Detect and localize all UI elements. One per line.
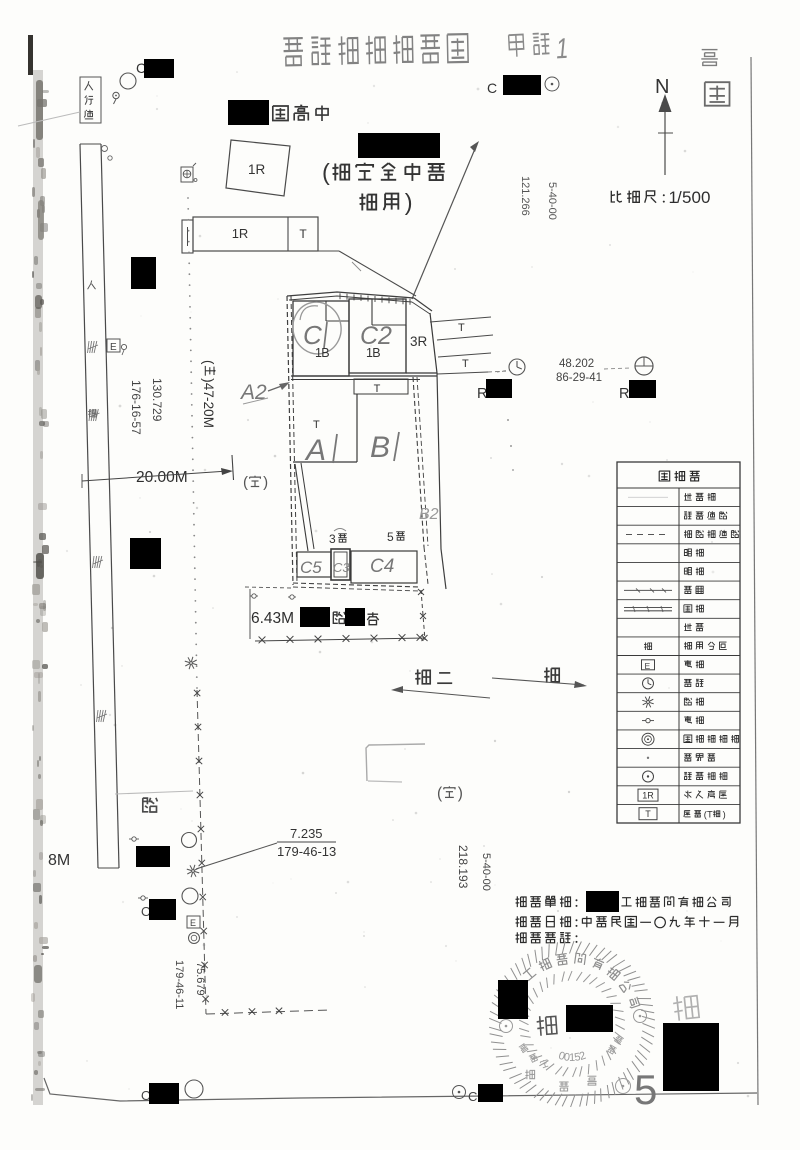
svg-text:179-46-13: 179-46-13 [277,844,336,859]
svg-text:T: T [707,810,713,820]
svg-text:130.729: 130.729 [150,378,164,422]
svg-text:20.00M: 20.00M [136,469,188,486]
svg-text:B: B [321,346,329,360]
svg-text:(: ( [201,360,216,365]
svg-text:(: ( [243,474,248,491]
svg-text:B: B [370,431,390,464]
svg-text:A2: A2 [239,381,267,404]
svg-text:): ) [405,189,413,215]
svg-text:): ) [263,474,268,491]
svg-text:1R: 1R [642,791,654,801]
svg-text:T: T [374,383,381,395]
svg-text:B: B [372,346,380,360]
svg-text:N: N [655,76,669,98]
svg-text:C: C [468,1089,477,1104]
svg-text:R: R [619,386,629,402]
svg-text:M: M [201,417,216,428]
svg-text:E: E [190,918,196,928]
svg-text:218.193: 218.193 [456,845,470,889]
svg-text:5-40-00: 5-40-00 [480,853,492,891]
svg-text:T: T [299,227,307,241]
svg-text:A: A [304,434,326,467]
svg-text:(: ( [322,159,330,185]
svg-text:2: 2 [201,402,216,410]
svg-text:75.679: 75.679 [194,962,206,996]
svg-text:): ) [458,785,463,802]
svg-text:(: ( [437,785,443,802]
svg-text:T: T [458,322,465,334]
svg-text:): ) [723,810,726,820]
svg-text:176-16-57: 176-16-57 [129,380,143,435]
svg-text:C3: C3 [333,560,350,575]
svg-text:8M: 8M [48,852,70,869]
svg-text:179-46-11: 179-46-11 [173,960,185,1009]
svg-text:86-29-41: 86-29-41 [556,372,602,384]
svg-text:7.235: 7.235 [290,826,323,841]
svg-text:T: T [313,419,320,431]
svg-text:5-40-00: 5-40-00 [546,182,558,220]
svg-text:E: E [645,661,651,671]
svg-text:1R: 1R [248,162,266,177]
svg-text:3R: 3R [410,334,428,349]
svg-text:3: 3 [329,532,336,546]
svg-text:C4: C4 [370,556,394,577]
svg-text:E: E [110,342,117,353]
svg-text:0: 0 [701,188,710,207]
svg-text:5: 5 [682,188,691,207]
svg-text:R: R [477,386,487,402]
svg-text:121.266: 121.266 [519,176,531,216]
svg-text:C: C [487,80,497,96]
svg-text:48.202: 48.202 [559,358,594,370]
svg-text:1: 1 [555,33,569,65]
svg-text:C5: C5 [300,558,322,577]
svg-text:T: T [645,809,651,819]
svg-text:0: 0 [201,409,216,417]
svg-text:5: 5 [387,530,394,544]
svg-text:0: 0 [692,188,701,207]
svg-text:5: 5 [634,1066,657,1113]
svg-text:6.43M: 6.43M [251,610,294,627]
svg-text:1R: 1R [232,226,249,241]
svg-text:T: T [462,358,469,370]
svg-text:B2: B2 [419,506,439,523]
